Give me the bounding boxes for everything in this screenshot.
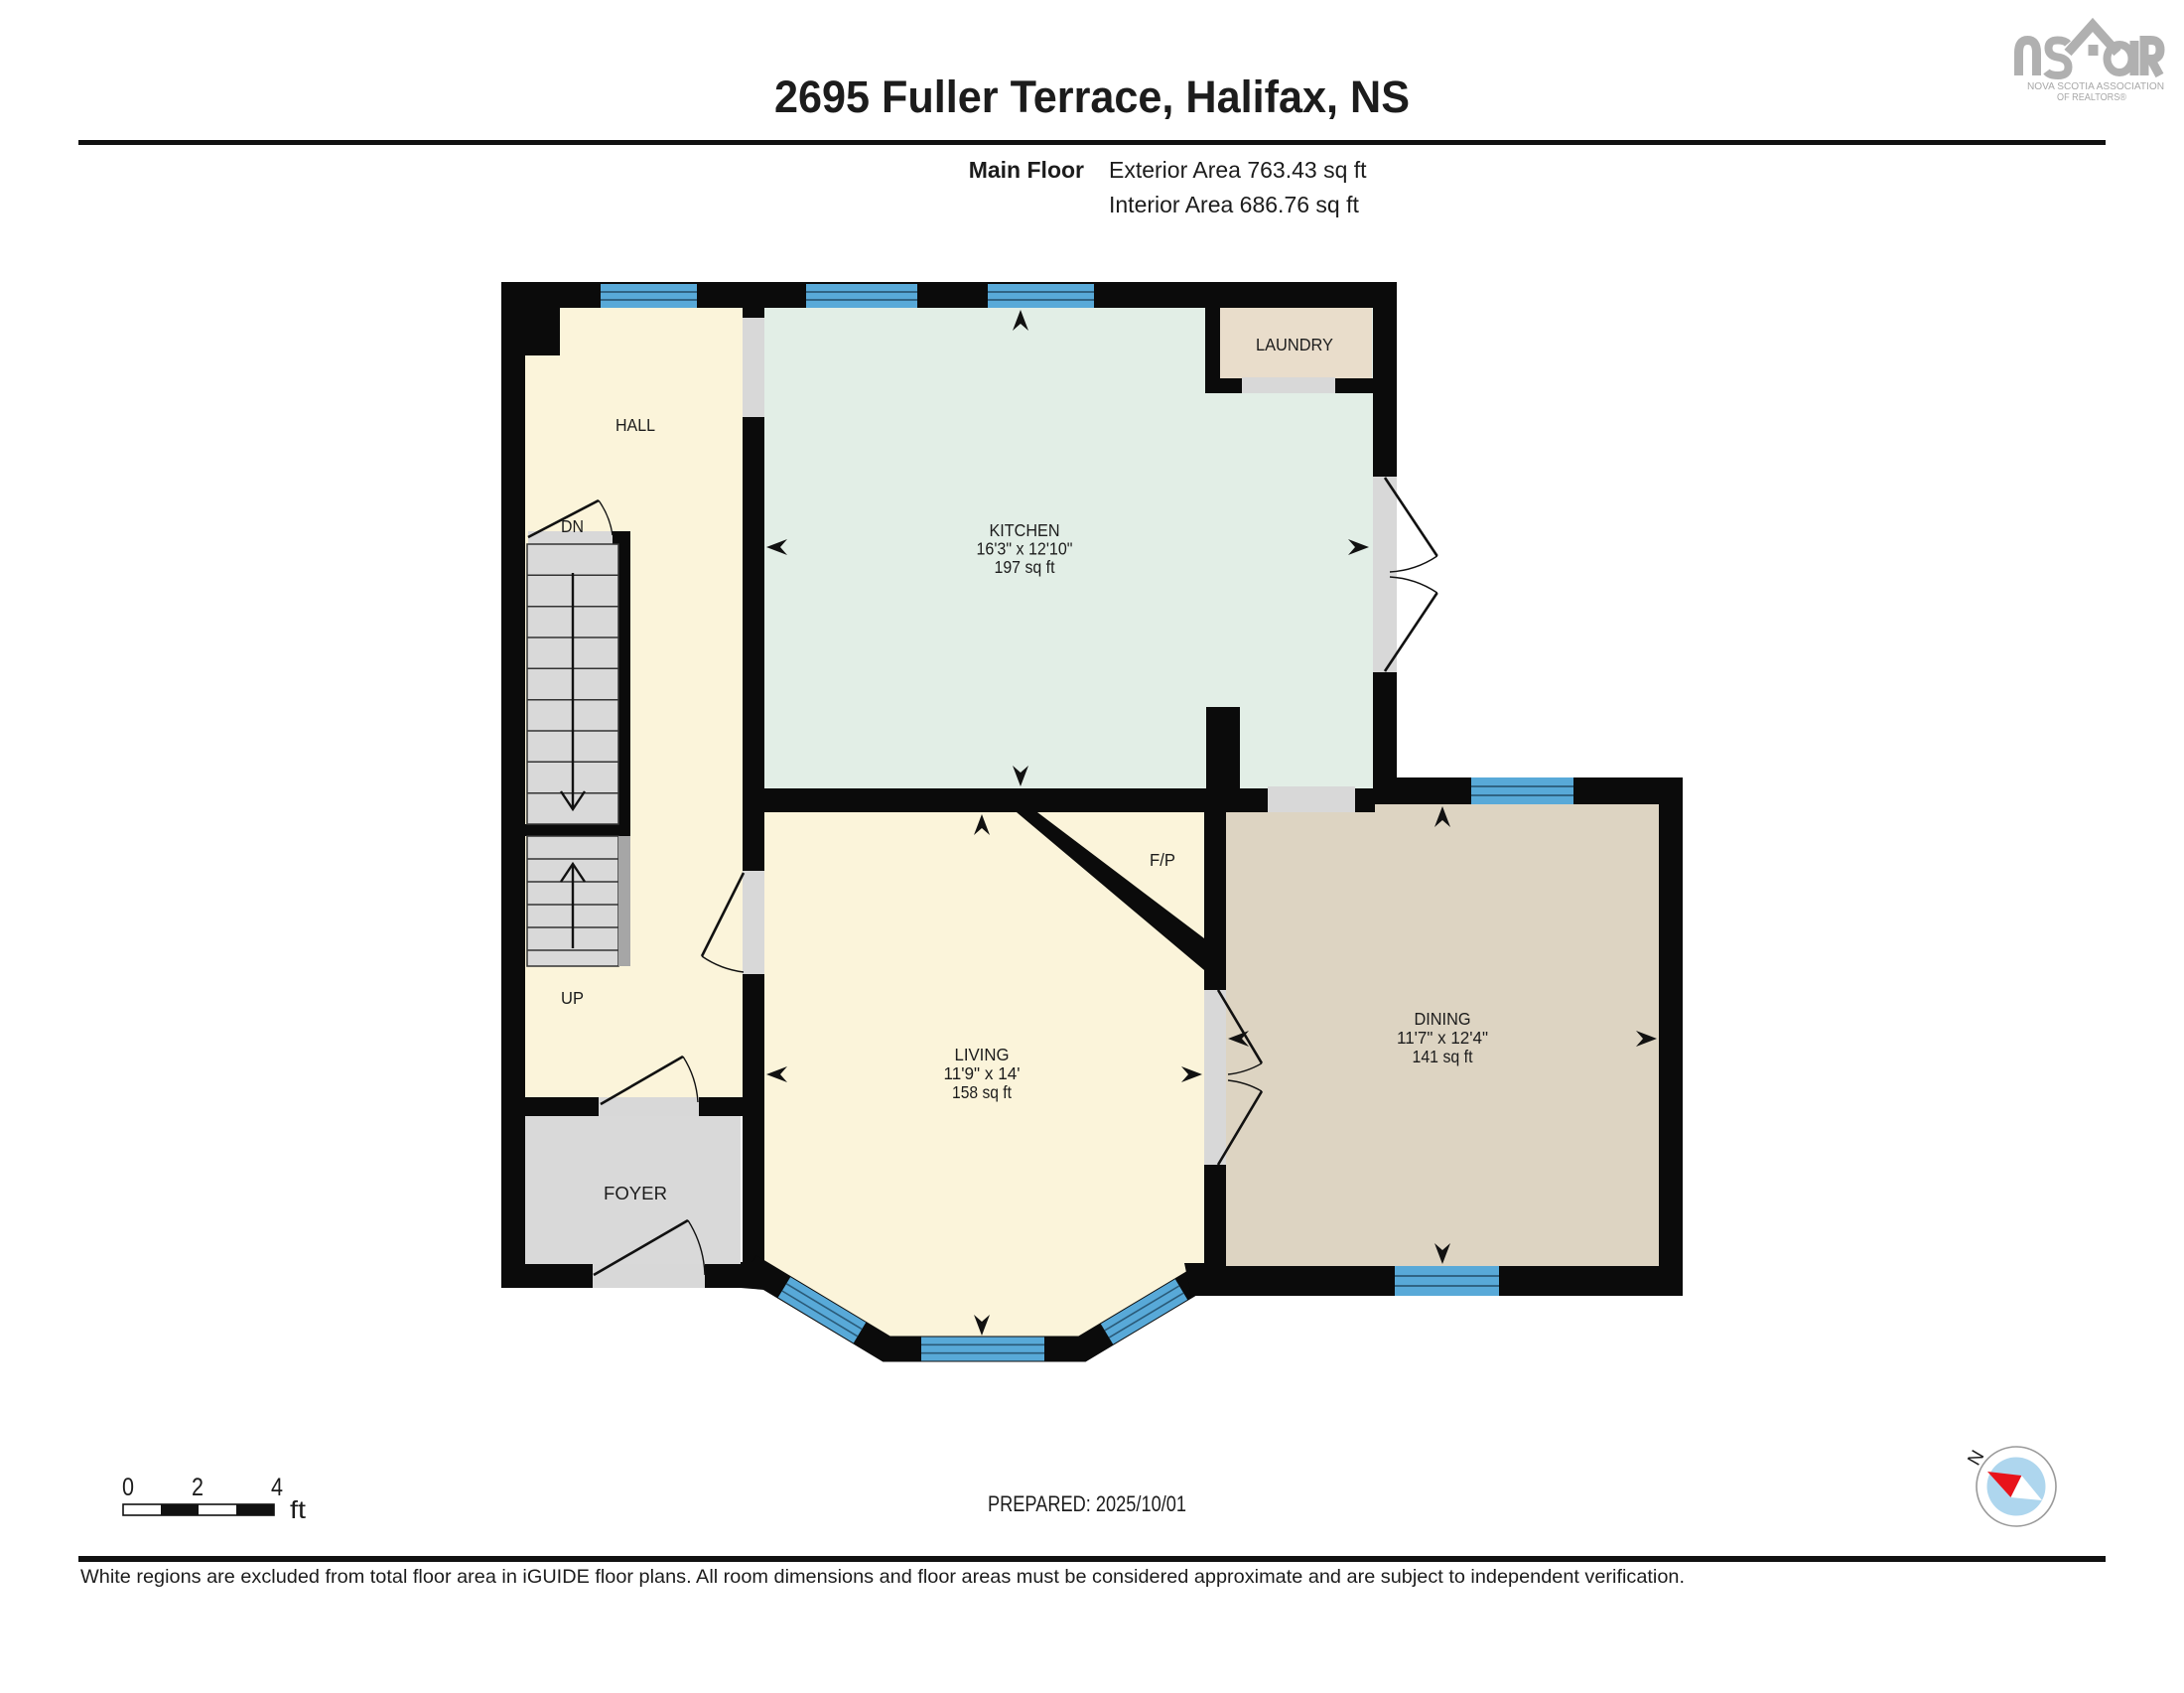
svg-text:White regions are excluded fro: White regions are excluded from total fl… — [80, 1566, 1685, 1588]
svg-text:158 sq ft: 158 sq ft — [952, 1082, 1012, 1102]
svg-text:11'7" x 12'4": 11'7" x 12'4" — [1397, 1028, 1488, 1048]
svg-text:UP: UP — [561, 988, 584, 1008]
svg-text:LAUNDRY: LAUNDRY — [1256, 335, 1333, 354]
svg-text:F/P: F/P — [1150, 850, 1175, 870]
svg-text:0: 0 — [122, 1474, 134, 1501]
svg-text:DN: DN — [561, 516, 584, 536]
svg-text:197 sq ft: 197 sq ft — [995, 557, 1055, 577]
svg-text:16'3" x 12'10": 16'3" x 12'10" — [977, 539, 1073, 559]
svg-text:NOVA SCOTIA ASSOCIATION: NOVA SCOTIA ASSOCIATION — [2027, 81, 2164, 92]
svg-text:Interior Area 686.76 sq ft: Interior Area 686.76 sq ft — [1109, 192, 1359, 217]
svg-text:PREPARED: 2025/10/01: PREPARED: 2025/10/01 — [988, 1491, 1186, 1516]
svg-text:ft: ft — [290, 1496, 306, 1524]
svg-text:Main Floor: Main Floor — [969, 157, 1084, 183]
svg-text:DINING: DINING — [1415, 1009, 1471, 1029]
svg-text:2695 Fuller Terrace, Halifax,: 2695 Fuller Terrace, Halifax, NS — [774, 71, 1410, 122]
svg-text:141 sq ft: 141 sq ft — [1413, 1047, 1473, 1066]
svg-text:KITCHEN: KITCHEN — [990, 520, 1060, 540]
svg-text:FOYER: FOYER — [604, 1184, 667, 1203]
svg-text:4: 4 — [271, 1474, 283, 1501]
svg-text:OF REALTORS®: OF REALTORS® — [2057, 92, 2127, 103]
svg-text:LIVING: LIVING — [955, 1045, 1010, 1064]
svg-text:2: 2 — [192, 1474, 204, 1501]
svg-text:Exterior Area 763.43 sq ft: Exterior Area 763.43 sq ft — [1109, 157, 1367, 183]
svg-text:11'9" x 14': 11'9" x 14' — [944, 1063, 1021, 1083]
svg-text:HALL: HALL — [615, 415, 655, 435]
